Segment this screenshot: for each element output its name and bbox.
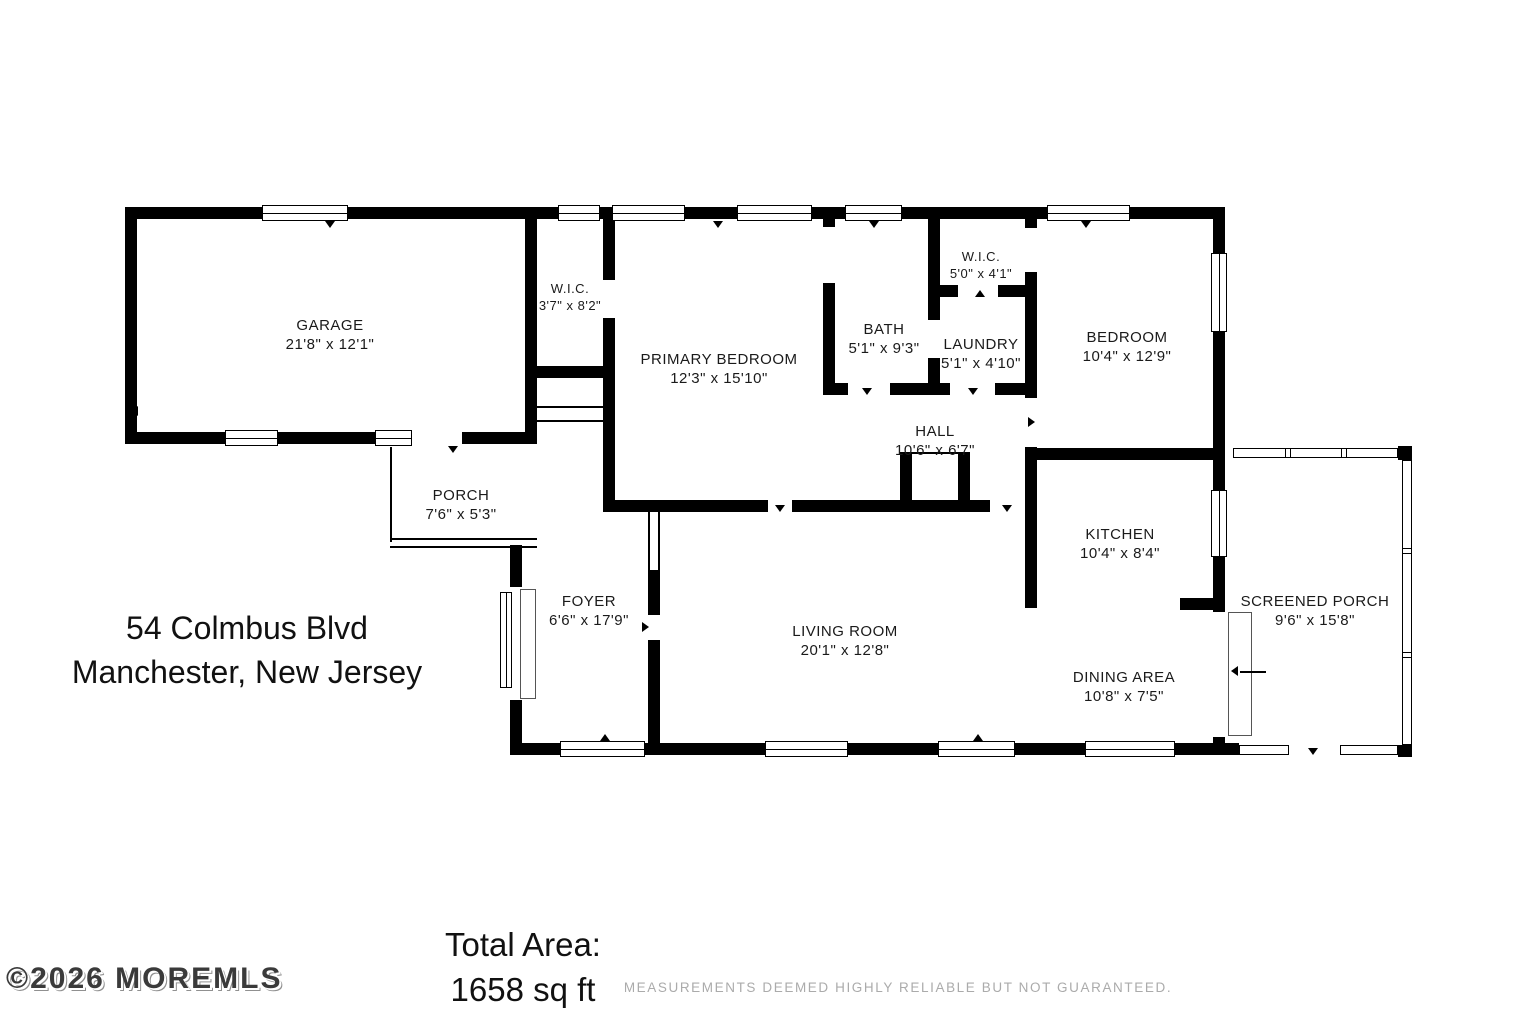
screen-band xyxy=(1340,745,1398,755)
wall-segment xyxy=(890,383,928,395)
door-opening-marker xyxy=(975,290,985,297)
screen-divider xyxy=(1346,448,1347,458)
wall-segment xyxy=(603,318,615,512)
room-dims: 5'1" x 4'10" xyxy=(941,354,1021,373)
direction-marker xyxy=(325,221,335,228)
screen-divider xyxy=(1341,448,1342,458)
room-name: DINING AREA xyxy=(1073,668,1175,687)
direction-marker xyxy=(1081,221,1091,228)
closet-opening-line xyxy=(528,420,603,422)
wall-segment xyxy=(1213,332,1225,448)
direction-marker xyxy=(869,221,879,228)
room-name: LAUNDRY xyxy=(941,335,1021,354)
door-opening-marker xyxy=(862,388,872,395)
wall-segment xyxy=(510,700,522,743)
front-door-sidelight-window xyxy=(500,592,512,688)
room-name: W.I.C. xyxy=(539,280,601,297)
room-name: BEDROOM xyxy=(1083,328,1172,347)
address-line2: Manchester, New Jersey xyxy=(72,650,422,694)
room-label-porch: PORCH 7'6" x 5'3" xyxy=(425,486,496,524)
wall-segment xyxy=(603,500,768,512)
wall-segment xyxy=(648,640,660,743)
wall-segment xyxy=(528,366,603,378)
porch-step-line xyxy=(390,538,537,540)
room-dims: 10'4" x 8'4" xyxy=(1080,544,1160,563)
screen-divider xyxy=(1402,548,1412,549)
wall-segment xyxy=(603,219,615,280)
door-opening-marker xyxy=(775,505,785,512)
porch-edge-line xyxy=(390,447,392,542)
wall-segment xyxy=(1213,460,1225,490)
room-name: PORCH xyxy=(425,486,496,505)
room-dims: 10'4" x 12'9" xyxy=(1083,347,1172,366)
room-dims: 6'6" x 17'9" xyxy=(549,611,629,630)
window xyxy=(938,741,1015,757)
room-dims: 7'6" x 5'3" xyxy=(425,505,496,524)
room-label-primary-bedroom: PRIMARY BEDROOM 12'3" x 15'10" xyxy=(641,350,798,388)
wall-segment xyxy=(792,500,990,512)
window xyxy=(558,205,600,221)
room-label-bath: BATH 5'1" x 9'3" xyxy=(848,320,919,358)
room-dims: 10'8" x 7'5" xyxy=(1073,687,1175,706)
screen-divider xyxy=(1402,652,1412,653)
wall-segment xyxy=(1213,219,1225,253)
cased-opening-jamb xyxy=(648,512,650,570)
room-label-foyer: FOYER 6'6" x 17'9" xyxy=(549,592,629,630)
room-label-living-room: LIVING ROOM 20'1" x 12'8" xyxy=(792,622,898,660)
mls-watermark: ©2026 MOREMLS xyxy=(6,962,283,996)
wall-segment xyxy=(525,219,537,432)
room-label-wic-left: W.I.C. 3'7" x 8'2" xyxy=(539,280,601,314)
room-name: LIVING ROOM xyxy=(792,622,898,641)
wall-segment xyxy=(510,545,522,587)
screen-band xyxy=(1233,448,1398,458)
wall-segment xyxy=(823,383,848,395)
direction-marker xyxy=(600,734,610,741)
wall-segment xyxy=(1025,448,1225,460)
room-name: HALL xyxy=(895,422,975,441)
room-label-bedroom: BEDROOM 10'4" x 12'9" xyxy=(1083,328,1172,366)
wall-segment xyxy=(1180,598,1225,610)
room-dims: 5'1" x 9'3" xyxy=(848,339,919,358)
window xyxy=(765,741,848,757)
wall-segment xyxy=(928,383,950,395)
total-area-value: 1658 sq ft xyxy=(445,967,601,1012)
wall-segment xyxy=(928,219,940,320)
wall-segment xyxy=(823,219,835,227)
wall-segment xyxy=(1025,272,1037,398)
room-label-hall: HALL 10'6" x 6'7" xyxy=(895,422,975,460)
door-opening-marker xyxy=(968,388,978,395)
room-label-dining-area: DINING AREA 10'8" x 7'5" xyxy=(1073,668,1175,706)
screen-divider xyxy=(1402,657,1412,658)
window xyxy=(1085,741,1175,757)
door-opening-marker xyxy=(1308,748,1318,755)
wall-segment xyxy=(1225,743,1239,755)
address-line1: 54 Colmbus Blvd xyxy=(72,606,422,650)
sliding-door-track-line xyxy=(1240,671,1266,673)
front-door xyxy=(520,589,536,699)
wall-segment xyxy=(823,283,835,395)
room-dims: 20'1" x 12'8" xyxy=(792,641,898,660)
window xyxy=(1211,253,1227,332)
window xyxy=(845,205,902,221)
room-dims: 10'6" x 6'7" xyxy=(895,441,975,460)
room-label-kitchen: KITCHEN 10'4" x 8'4" xyxy=(1080,525,1160,563)
sliding-door-arrow-icon xyxy=(1231,666,1238,676)
room-label-garage: GARAGE 21'8" x 12'1" xyxy=(286,316,375,354)
floor-plan-page: GARAGE 21'8" x 12'1" W.I.C. 3'7" x 8'2" … xyxy=(0,0,1536,1024)
wall-segment xyxy=(1025,447,1037,608)
window xyxy=(375,430,412,446)
wall-segment xyxy=(1398,446,1412,460)
total-area-label: Total Area: xyxy=(445,922,601,967)
room-name: BATH xyxy=(848,320,919,339)
window xyxy=(560,741,645,757)
window xyxy=(262,205,348,221)
wall-segment xyxy=(1398,745,1412,757)
direction-marker xyxy=(131,406,138,416)
room-label-laundry: LAUNDRY 5'1" x 4'10" xyxy=(941,335,1021,373)
room-dims: 12'3" x 15'10" xyxy=(641,369,798,388)
door-opening-marker xyxy=(1028,417,1035,427)
window xyxy=(225,430,278,446)
room-name: PRIMARY BEDROOM xyxy=(641,350,798,369)
room-name: W.I.C. xyxy=(950,248,1012,265)
window xyxy=(612,205,685,221)
window xyxy=(737,205,812,221)
cased-opening-jamb xyxy=(658,512,660,570)
door-opening-marker xyxy=(1002,505,1012,512)
room-dims: 3'7" x 8'2" xyxy=(539,297,601,314)
door-opening-marker xyxy=(448,446,458,453)
screen-divider xyxy=(1290,448,1291,458)
door-opening-marker xyxy=(642,622,649,632)
room-dims: 9'6" x 15'8" xyxy=(1241,611,1390,630)
room-name: SCREENED PORCH xyxy=(1241,592,1390,611)
screen-band xyxy=(1402,460,1412,745)
room-name: KITCHEN xyxy=(1080,525,1160,544)
room-label-screened-porch: SCREENED PORCH 9'6" x 15'8" xyxy=(1241,592,1390,630)
wall-segment xyxy=(462,432,537,444)
measurement-disclaimer: MEASUREMENTS DEEMED HIGHLY RELIABLE BUT … xyxy=(624,980,1172,995)
room-dims: 21'8" x 12'1" xyxy=(286,335,375,354)
screen-divider xyxy=(1285,448,1286,458)
property-address: 54 Colmbus Blvd Manchester, New Jersey xyxy=(72,606,422,694)
room-dims: 5'0" x 4'1" xyxy=(950,265,1012,282)
direction-marker xyxy=(713,221,723,228)
closet-opening-line xyxy=(528,406,603,408)
porch-step-line xyxy=(390,546,537,548)
screen-divider xyxy=(1402,553,1412,554)
room-label-wic-right: W.I.C. 5'0" x 4'1" xyxy=(950,248,1012,282)
window xyxy=(1047,205,1130,221)
room-name: FOYER xyxy=(549,592,629,611)
room-name: GARAGE xyxy=(286,316,375,335)
wall-segment xyxy=(1025,219,1037,228)
direction-marker xyxy=(973,734,983,741)
screen-band xyxy=(1239,745,1289,755)
window xyxy=(1211,490,1227,557)
wall-segment xyxy=(648,570,660,615)
total-area: Total Area: 1658 sq ft xyxy=(445,922,601,1012)
wall-segment xyxy=(928,285,958,297)
